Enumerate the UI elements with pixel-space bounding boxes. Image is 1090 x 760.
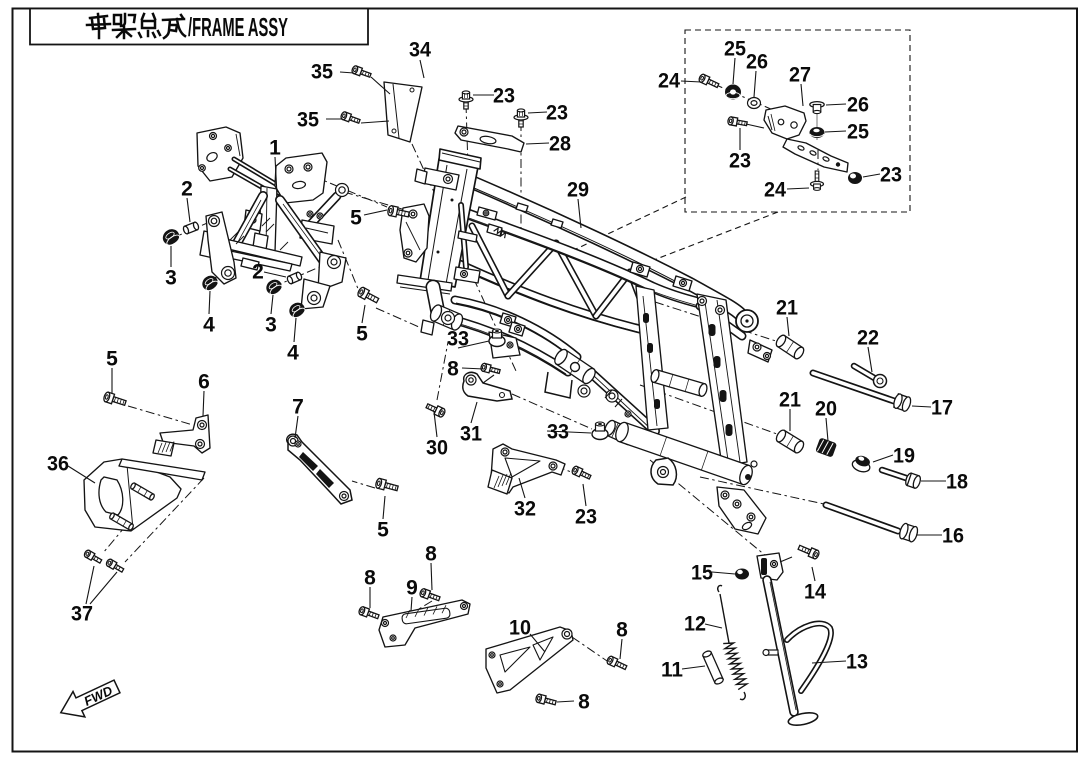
svg-text:26: 26 (847, 94, 869, 117)
svg-text:2: 2 (252, 261, 264, 284)
svg-text:24: 24 (658, 70, 680, 93)
svg-text:33: 33 (547, 421, 569, 444)
svg-text:21: 21 (776, 297, 798, 320)
svg-text:20: 20 (815, 398, 837, 421)
svg-text:1: 1 (269, 137, 281, 160)
svg-text:11: 11 (661, 659, 683, 682)
svg-text:4: 4 (203, 314, 215, 337)
svg-text:6: 6 (198, 371, 210, 394)
svg-text:5: 5 (106, 348, 118, 371)
svg-text:33: 33 (447, 328, 469, 351)
svg-text:3: 3 (265, 314, 277, 337)
svg-text:9: 9 (406, 577, 418, 600)
svg-text:5: 5 (350, 207, 362, 230)
svg-text:35: 35 (311, 61, 333, 84)
svg-text:27: 27 (789, 64, 811, 87)
svg-text:36: 36 (47, 453, 69, 476)
svg-text:35: 35 (297, 109, 319, 132)
svg-text:5: 5 (356, 323, 368, 346)
svg-text:8: 8 (447, 358, 459, 381)
svg-text:2: 2 (181, 178, 193, 201)
svg-text:21: 21 (779, 389, 801, 412)
svg-text:14: 14 (804, 581, 826, 604)
svg-text:29: 29 (567, 179, 589, 202)
svg-text:24: 24 (764, 179, 786, 202)
svg-text:30: 30 (426, 437, 448, 460)
svg-text:37: 37 (71, 603, 93, 626)
svg-text:18: 18 (946, 471, 968, 494)
svg-text:23: 23 (729, 150, 751, 173)
svg-text:8: 8 (578, 691, 590, 714)
svg-text:8: 8 (425, 543, 437, 566)
svg-text:12: 12 (684, 613, 706, 636)
svg-text:/FRAME ASSY: /FRAME ASSY (188, 12, 288, 42)
svg-text:3: 3 (165, 267, 177, 290)
svg-text:26: 26 (746, 51, 768, 74)
svg-text:19: 19 (893, 445, 915, 468)
svg-text:7: 7 (292, 396, 304, 419)
svg-text:32: 32 (514, 498, 536, 521)
svg-text:4: 4 (287, 342, 299, 365)
svg-text:22: 22 (857, 327, 879, 350)
svg-text:23: 23 (493, 85, 515, 108)
svg-text:10: 10 (509, 617, 531, 640)
svg-text:28: 28 (549, 133, 571, 156)
svg-text:23: 23 (546, 102, 568, 125)
svg-text:17: 17 (931, 397, 953, 420)
svg-text:25: 25 (724, 38, 746, 61)
svg-text:23: 23 (880, 164, 902, 187)
svg-text:23: 23 (575, 506, 597, 529)
svg-text:25: 25 (847, 121, 869, 144)
svg-text:34: 34 (409, 39, 431, 62)
svg-text:5: 5 (377, 519, 389, 542)
svg-text:15: 15 (691, 562, 713, 585)
svg-text:8: 8 (616, 619, 628, 642)
svg-text:31: 31 (460, 423, 482, 446)
svg-text:13: 13 (846, 651, 868, 674)
svg-text:8: 8 (364, 567, 376, 590)
svg-text:16: 16 (942, 525, 964, 548)
